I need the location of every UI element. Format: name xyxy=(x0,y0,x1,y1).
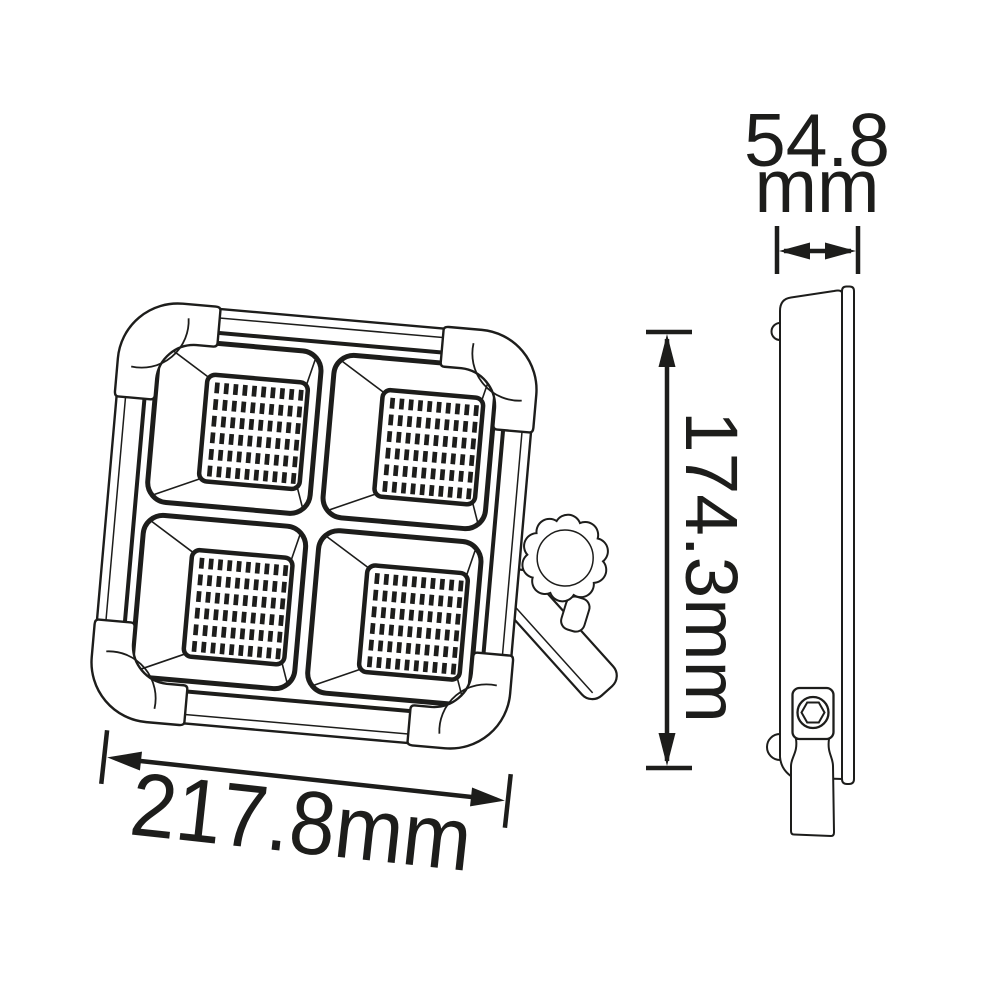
diagram-canvas: 54.8 mm 174.3mm 217.8mm xyxy=(0,0,1000,1000)
side-knob-bump xyxy=(767,734,780,760)
led-module xyxy=(146,338,323,515)
extension-tick xyxy=(505,774,511,828)
side-view xyxy=(767,287,854,837)
front-glass-edge xyxy=(842,287,854,785)
stand-leg-side xyxy=(791,739,834,836)
technical-drawing: 54.8 mm 174.3mm 217.8mm xyxy=(0,0,1000,1000)
arrowhead-down-icon xyxy=(659,733,676,766)
arrowhead-right-icon xyxy=(825,243,856,260)
height-value-label: 174.3mm xyxy=(670,411,753,723)
height-dimension: 174.3mm xyxy=(646,332,753,768)
side-button-bump xyxy=(772,323,781,340)
extension-tick xyxy=(101,730,107,784)
front-view xyxy=(86,298,651,763)
led-module xyxy=(321,354,498,531)
led-module xyxy=(131,514,308,691)
led-module xyxy=(306,529,483,706)
depth-unit-label: mm xyxy=(755,144,880,228)
arrowhead-left-icon xyxy=(779,243,810,260)
width-value-label: 217.8mm xyxy=(126,755,477,891)
arrowhead-up-icon xyxy=(659,334,676,367)
width-dimension: 217.8mm xyxy=(94,730,511,894)
depth-dimension: 54.8 mm xyxy=(744,98,890,274)
hex-bolt-icon xyxy=(802,703,825,723)
